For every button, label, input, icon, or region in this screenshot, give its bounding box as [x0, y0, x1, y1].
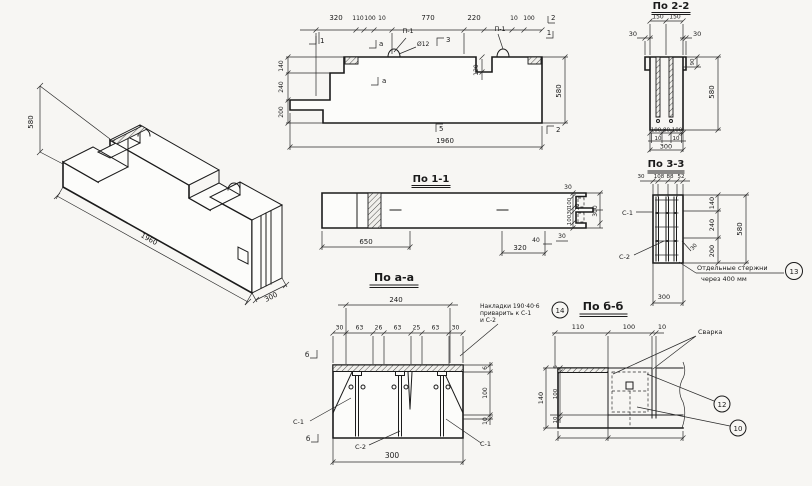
elev-dim-110: 110: [352, 15, 364, 22]
plate-hatch: [558, 368, 608, 373]
elev-dim-120: 120: [473, 64, 480, 76]
saa-label-c1-left: С-1: [293, 418, 304, 426]
sbb-weld-label: Сварка: [698, 328, 722, 336]
section-2-2-outline: [645, 57, 686, 130]
s11-chain-10: 10: [575, 203, 581, 210]
s22-dim-90: 90: [690, 58, 696, 65]
sbb-dim-110: 110: [572, 323, 584, 331]
saa-note-line3: и С-2: [480, 317, 496, 324]
s33-dim-240: 240: [708, 219, 716, 231]
s11-chain-30: 30: [567, 207, 573, 214]
sbb-dim-10l: 10: [553, 416, 559, 423]
sbb-dim-10: 10: [658, 323, 666, 331]
section-marker-2-top: 2: [551, 14, 555, 22]
s11-dim-650: 650: [359, 238, 372, 246]
elev-dim-10b: 10: [510, 15, 518, 22]
s33-note-line2: через 400 мм: [701, 275, 747, 283]
s11-dim-300: 300: [592, 205, 599, 217]
iso-dim-width: 300: [263, 291, 279, 304]
loop-label-2: П-1: [494, 25, 505, 33]
sbb-ref-10: 10: [734, 425, 743, 433]
saa-dim-240: 240: [389, 296, 402, 304]
s11-dim-30-top: 30: [564, 184, 572, 191]
saa-chain-30b: 30: [452, 325, 460, 332]
elev-dim-580: 580: [555, 84, 563, 97]
elev-dim-140: 140: [278, 60, 285, 72]
sbb-dim-100l: 100: [553, 388, 559, 399]
saa-marker-b-bottom: б: [306, 435, 310, 443]
section-b-b-title: По б-б: [583, 300, 624, 313]
s11-dim-320: 320: [513, 244, 526, 252]
hidden-lines: [612, 372, 648, 428]
s11-chain-100b: 100: [567, 214, 573, 225]
s33-dim-30: 30: [638, 174, 645, 180]
s22-dim-10a: 10: [655, 136, 662, 142]
saa-chain-26: 26: [375, 325, 383, 332]
section-marker-a-top: а: [379, 40, 383, 48]
saa-note-line2: приварить к С-1: [480, 310, 531, 317]
top-plate-hatch: [333, 365, 463, 372]
saa-dim-6: 6: [482, 366, 489, 370]
s22-dim-100a: 100: [651, 128, 662, 134]
s11-chain-100a: 100: [567, 197, 573, 208]
elevation-outline: [290, 57, 542, 123]
s33-dim-30-diag: 30: [690, 242, 699, 252]
s33-label-c2: С-2: [619, 253, 630, 261]
section-marker-1-right: 1: [547, 29, 551, 37]
saa-dim-300: 300: [385, 451, 400, 460]
section-1-1-hatch: [368, 193, 381, 228]
elev-dim-320: 320: [329, 14, 342, 22]
section-1-1-view: По 1-1 650 320 40 30 30 100 10 30 100 30…: [320, 174, 604, 256]
section-2-2-loop-bars: [656, 57, 673, 117]
sbb-ref-12: 12: [718, 401, 727, 409]
saa-dim-10: 10: [482, 417, 489, 425]
elevation-view: 320 110 100 10 770 220 10 100 140 240 20…: [278, 14, 568, 150]
section-1-1-outline: [322, 193, 593, 228]
section-3-3-title: По 3-3: [648, 159, 685, 170]
elev-dim-10a: 10: [378, 15, 386, 22]
saa-label-c1-right: С-1: [480, 440, 491, 448]
sbb-dim-140: 140: [537, 392, 545, 404]
s33-note-ref: 13: [790, 268, 799, 276]
break-line: [680, 362, 685, 428]
section-marker-5: 5: [439, 125, 443, 133]
s11-dim-30-bottom: 30: [558, 233, 566, 240]
saa-chain-63b: 63: [394, 325, 402, 332]
saa-marker-b-top: б: [305, 351, 309, 359]
section-b-b-view: По б-б 110 100 10 6 100 10 140 Сварка 12…: [537, 300, 746, 441]
sbb-dim-100: 100: [623, 323, 635, 331]
loop-dia-label: Ø12: [417, 41, 430, 48]
s33-dim-580: 580: [736, 222, 744, 235]
s33-dim-52: 52: [678, 174, 685, 180]
s33-dim-108: 108: [654, 174, 665, 180]
s33-dim-88: 88: [667, 174, 674, 180]
section-3-3-view: По 3-3 30 108 88 52 140 240 200 580 30 С…: [619, 159, 803, 306]
section-marker-a-bottom: а: [382, 77, 386, 85]
saa-note-ref: 14: [556, 307, 565, 315]
s33-dim-140: 140: [708, 197, 716, 209]
s22-dim-80: 80: [663, 128, 670, 134]
section-b-b-outline: [558, 368, 683, 428]
section-marker-3: 3: [446, 36, 450, 44]
elev-dim-770: 770: [421, 14, 434, 22]
s22-dim-30l: 30: [629, 30, 637, 38]
section-2-2-view: По 2-2 150 150 30 30 90 580 100 80 100 1…: [629, 1, 721, 153]
section-marker-1-left: 1: [320, 37, 324, 45]
s22-dim-30r: 30: [693, 30, 701, 38]
s22-dim-150b: 150: [669, 14, 681, 21]
saa-dim-100: 100: [482, 387, 489, 399]
s11-dim-40: 40: [532, 237, 540, 244]
elev-dim-240: 240: [278, 81, 285, 93]
lifting-loops: [388, 49, 509, 57]
s22-dim-150a: 150: [652, 14, 664, 21]
saa-label-c2: С-2: [355, 443, 366, 451]
s22-dim-100b: 100: [672, 128, 683, 134]
iso-dim-height: 580: [27, 115, 35, 128]
s33-dim-200: 200: [708, 245, 716, 257]
s33-label-c1: С-1: [622, 209, 633, 217]
section-a-a-view: По а-а 240 30 63 26 63 25 63 30 6 100 10…: [293, 271, 568, 465]
elev-dim-200: 200: [278, 106, 285, 118]
section-a-a-title: По а-а: [374, 271, 414, 284]
saa-note-line1: Накладки 190·40·6: [480, 303, 540, 310]
section-1-1-title: По 1-1: [413, 174, 450, 185]
elev-dim-1960: 1960: [436, 137, 454, 145]
elev-dim-220: 220: [467, 14, 480, 22]
s33-note-line1: Отдельные стержни: [697, 264, 768, 272]
s22-dim-10b: 10: [673, 136, 680, 142]
section-2-2-title: По 2-2: [653, 1, 690, 12]
s33-dim-300: 300: [658, 293, 670, 301]
isometric-view: 580 1960 300: [27, 83, 289, 305]
s22-dim-580: 580: [708, 85, 716, 98]
saa-chain-25: 25: [413, 325, 421, 332]
elev-dim-100a: 100: [364, 15, 376, 22]
loop-label-1: П-1: [402, 27, 413, 35]
saa-chain-30a: 30: [336, 325, 344, 332]
saa-chain-63a: 63: [356, 325, 364, 332]
drawing-sheet: 580 1960 300 320 110 100 10 770 220 10 1…: [0, 0, 812, 486]
sbb-dim-6: 6: [553, 365, 559, 369]
section-marker-2-bottom: 2: [556, 126, 560, 134]
elev-dim-100b: 100: [523, 15, 535, 22]
saa-chain-63c: 63: [432, 325, 440, 332]
s22-dim-300: 300: [660, 143, 672, 151]
technical-drawing: 580 1960 300 320 110 100 10 770 220 10 1…: [0, 0, 812, 486]
